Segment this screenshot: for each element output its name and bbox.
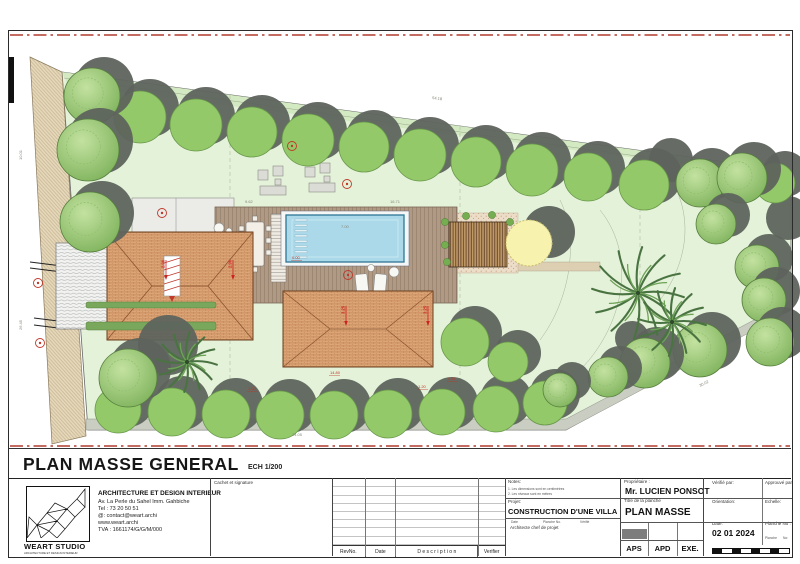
date-value: 02 01 2024 — [712, 528, 755, 538]
rev-col-revno: RevNo. — [332, 546, 366, 557]
rev-col-date: Date — [366, 546, 397, 557]
notes-line-2: 2. Les niveaux sont en mètres — [508, 492, 552, 496]
scale-bar — [712, 548, 790, 554]
company-logo — [26, 486, 90, 542]
phase-exe: EXE. — [677, 541, 703, 556]
revision-table-header: RevNo. Date D e s c r i p t i o n Verifi… — [332, 545, 505, 557]
phase-aps: APS — [620, 541, 648, 556]
scale-note: ECH 1/200 — [248, 464, 282, 471]
planche-value: PLAN MASSE — [625, 507, 691, 518]
projet-sub-h1: Date — [511, 520, 518, 524]
planche-word: Planche — [765, 536, 777, 540]
drawing-sheet: { "sheet": { "title": "PLAN MASSE GENERA… — [0, 0, 800, 564]
echelle-label: Echelle: — [765, 500, 781, 505]
title-band: PLAN MASSE GENERAL ECH 1/200 — [9, 448, 791, 481]
projet-label: Projet: — [508, 500, 521, 505]
approuve-label: Approuvé par: — [765, 481, 793, 486]
proprietaire-label: Propriétaire : — [624, 480, 650, 485]
logo-title: WEART STUDIO — [24, 542, 86, 551]
projet-value: CONSTRUCTION D'UNE VILLA — [508, 507, 617, 516]
logo-subtitle: ARCHITECTURE ET DESIGN INTERIEUR — [24, 551, 78, 555]
logo-mesh-icon — [27, 487, 86, 538]
proprietaire-value: Mr. LUCIEN PONSOT — [625, 486, 710, 496]
rev-col-description: D e s c r i p t i o n — [396, 546, 478, 557]
phase-selected-box — [622, 529, 647, 539]
verifie-label: Vérifié par: — [712, 481, 734, 486]
phase-apd: APD — [648, 541, 677, 556]
rev-col-verifier: Verifier — [478, 546, 505, 557]
projet-sub-h2: Planche No. — [543, 520, 561, 524]
projet-sub-h3: Vérifié — [580, 520, 589, 524]
revision-table — [332, 479, 505, 545]
planche-label: Titre de la planche — [624, 499, 661, 504]
company-tva: TVA : 1661174/G/G/M/000 — [98, 527, 162, 534]
cachet-label: Cachet et signature — [214, 481, 253, 486]
orientation-label: Orientation: — [712, 500, 735, 505]
company-heading: ARCHITECTURE ET DESIGN INTERIEUR — [98, 490, 221, 497]
notes-line-1: 1. Les dimensions sont en centimètres — [508, 487, 564, 491]
notes-label: Notes: — [508, 480, 521, 485]
projet-sub: Architecte chef de projet — [510, 526, 559, 531]
no-word: No: — [783, 536, 788, 540]
page-title: PLAN MASSE GENERAL — [23, 454, 239, 475]
